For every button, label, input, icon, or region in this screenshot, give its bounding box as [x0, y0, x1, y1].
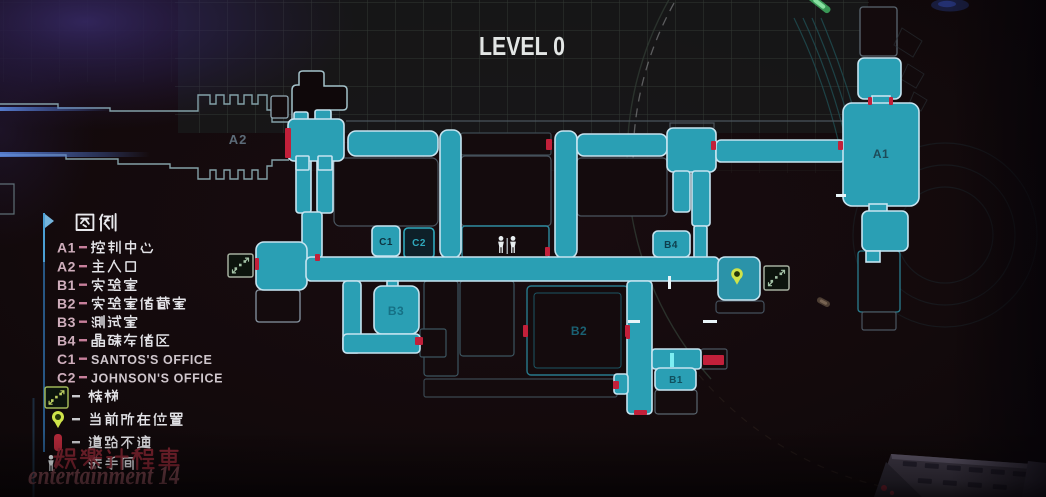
svg-text:A1: A1: [873, 147, 889, 161]
svg-text:B4: B4: [664, 240, 678, 251]
svg-text:A1: A1: [57, 240, 76, 256]
svg-text:B4: B4: [57, 333, 76, 349]
svg-text:C1: C1: [379, 237, 393, 248]
svg-text:C2: C2: [57, 370, 76, 386]
svg-text:JOHNSON'S OFFICE: JOHNSON'S OFFICE: [91, 372, 223, 386]
svg-text:C2: C2: [412, 238, 426, 249]
svg-text:C1: C1: [57, 351, 76, 367]
svg-text:B1: B1: [57, 277, 76, 293]
svg-text:B1: B1: [669, 375, 683, 386]
svg-text:SANTOS'S OFFICE: SANTOS'S OFFICE: [91, 353, 212, 367]
svg-text:A2: A2: [57, 259, 76, 275]
svg-text:A2: A2: [229, 132, 248, 147]
svg-text:B2: B2: [571, 324, 587, 338]
svg-text:B2: B2: [57, 296, 76, 312]
svg-text:B3: B3: [57, 314, 76, 330]
svg-text:LEVEL 0: LEVEL 0: [479, 31, 565, 61]
svg-text:B3: B3: [388, 304, 404, 318]
